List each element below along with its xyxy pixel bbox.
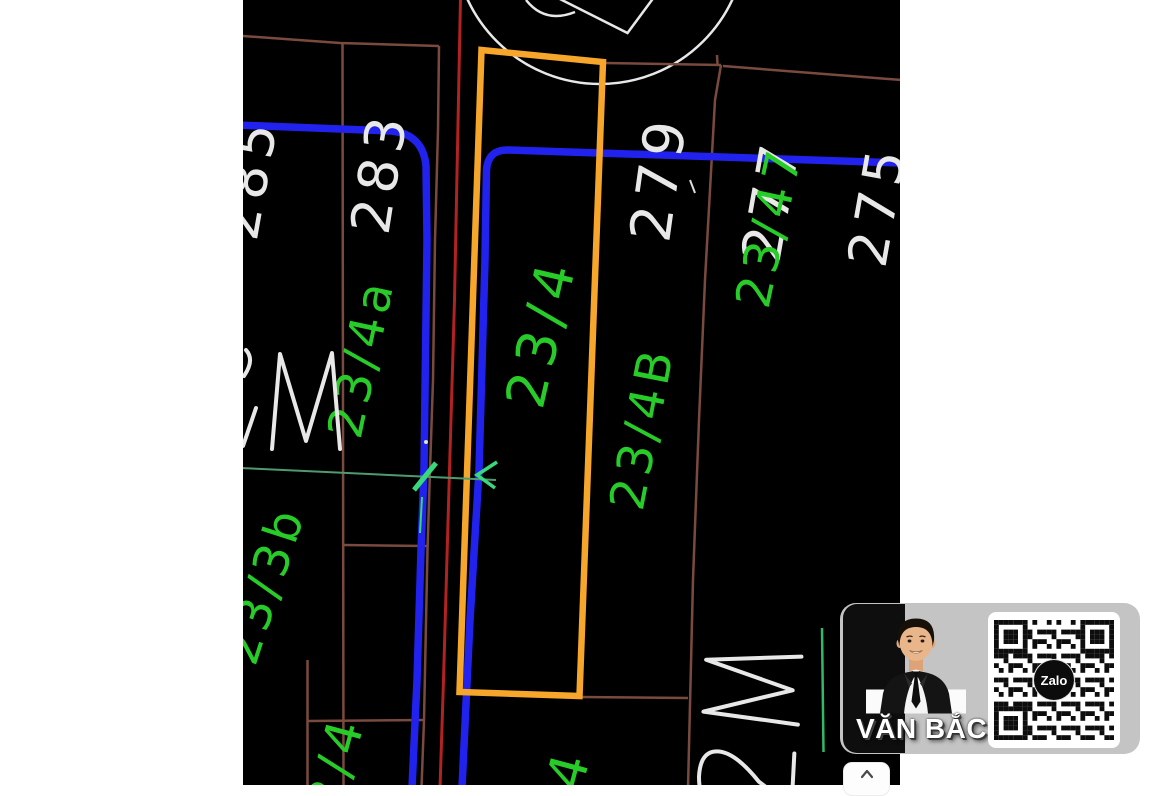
zalo-logo-icon: Zalo	[1033, 659, 1075, 701]
map-viewport[interactable]: 285 283 279 277 275 23/4a 23/4 23/4B 23/…	[243, 0, 900, 785]
chevron-up-icon	[854, 763, 880, 785]
parcel-label: 23/4	[509, 742, 603, 785]
parcel-label: 23/3b	[243, 499, 317, 672]
survey-point-dot	[424, 440, 428, 444]
contact-card[interactable]: VĂN BẮC Zalo	[840, 603, 1140, 754]
zalo-logo-label: Zalo	[1041, 673, 1068, 688]
parcel-label: 23/4B	[599, 341, 686, 514]
cadastral-map-canvas: 285 283 279 277 275 23/4a 23/4 23/4B 23/…	[243, 0, 900, 785]
scroll-top-button[interactable]	[843, 762, 890, 796]
parcel-number-labels: 23/4a 23/4 23/4B 23/47 23/3b 23/4 23/4	[243, 141, 814, 785]
house-number: 279	[618, 110, 700, 246]
dimension-line	[243, 468, 496, 480]
parcel-label: 23/4	[285, 709, 376, 785]
house-number: 283	[339, 106, 421, 238]
parcel-label: 23/4	[494, 250, 590, 414]
agent-photo	[866, 613, 966, 714]
house-number: 285	[243, 111, 291, 244]
road-width-label-2m-bottom	[698, 652, 802, 785]
zalo-qr-code: Zalo	[988, 612, 1120, 748]
